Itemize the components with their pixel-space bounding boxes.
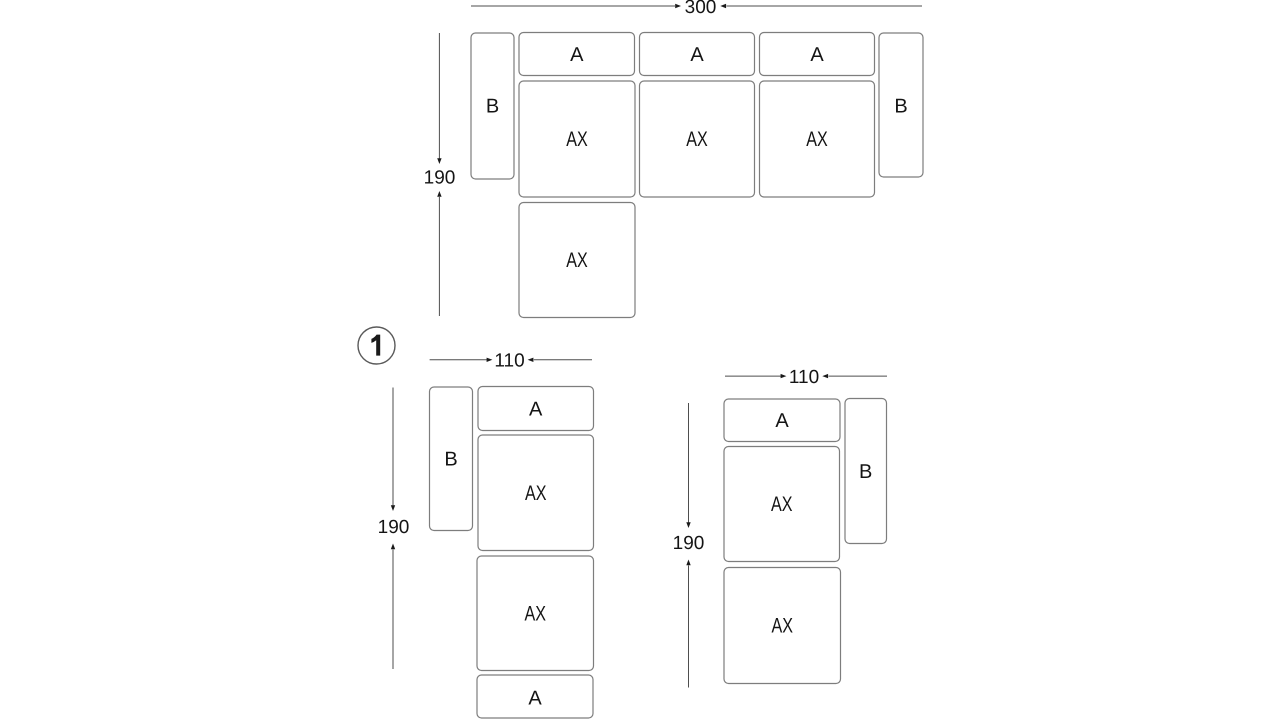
svg-text:110: 110	[494, 351, 524, 372]
svg-text:B: B	[486, 96, 499, 118]
svg-text:AX: AX	[806, 128, 828, 151]
svg-text:A: A	[570, 44, 584, 66]
svg-text:AX: AX	[525, 603, 547, 626]
svg-text:110: 110	[789, 367, 819, 388]
svg-text:AX: AX	[686, 128, 708, 151]
svg-text:190: 190	[378, 517, 410, 538]
svg-text:A: A	[810, 44, 824, 66]
svg-text:AX: AX	[566, 249, 588, 272]
svg-text:B: B	[859, 461, 872, 483]
svg-text:A: A	[529, 399, 543, 421]
svg-text:AX: AX	[566, 128, 588, 151]
svg-text:AX: AX	[771, 493, 793, 516]
svg-text:A: A	[690, 44, 704, 66]
svg-text:A: A	[528, 688, 542, 710]
svg-text:B: B	[444, 449, 457, 471]
svg-text:300: 300	[685, 0, 717, 18]
svg-text:B: B	[894, 96, 907, 118]
svg-text:A: A	[775, 410, 789, 432]
svg-text:AX: AX	[771, 615, 793, 638]
svg-text:190: 190	[424, 168, 456, 189]
svg-text:AX: AX	[525, 482, 547, 505]
svg-text:190: 190	[673, 533, 705, 554]
